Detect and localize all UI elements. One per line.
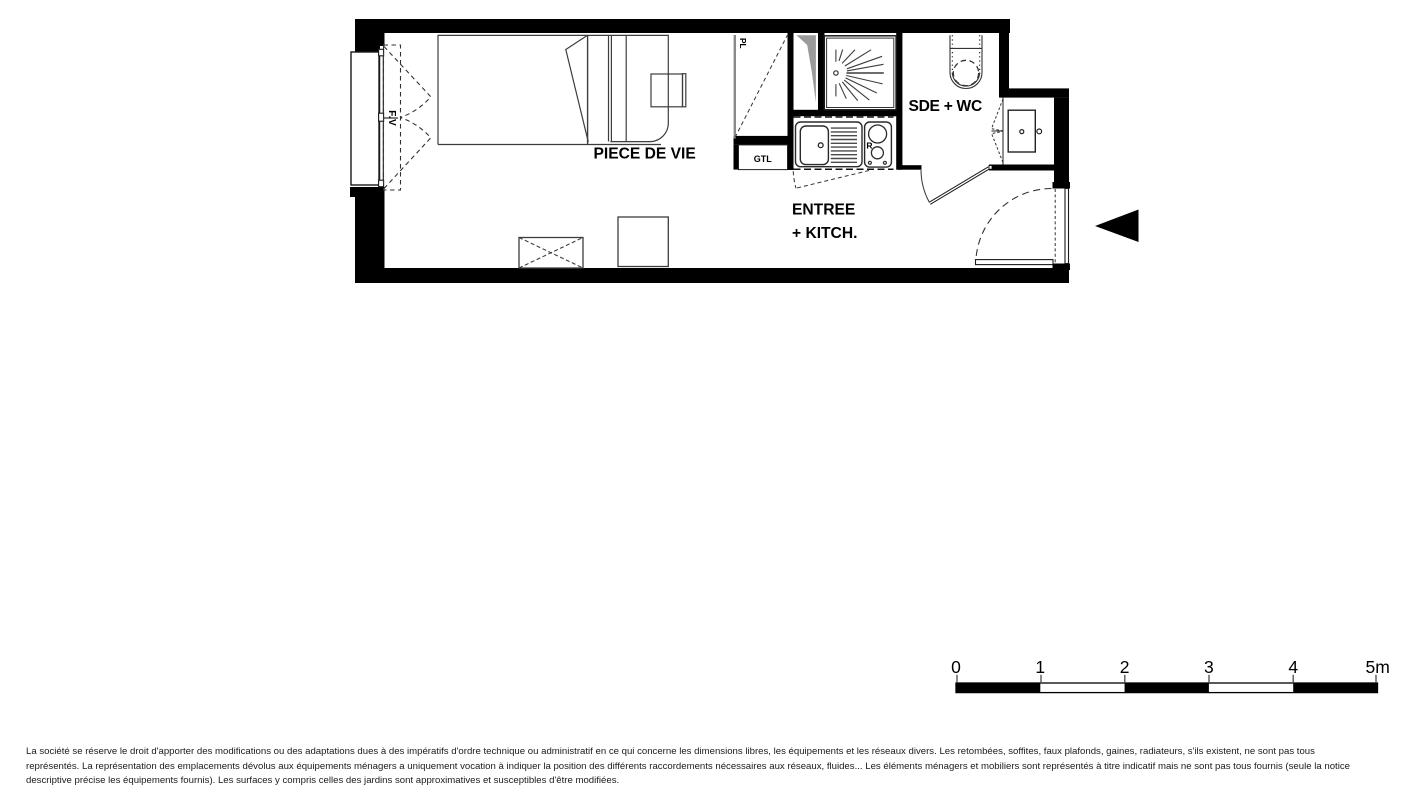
svg-text:SDE + WC: SDE + WC <box>909 98 982 115</box>
svg-text:1: 1 <box>1035 657 1045 677</box>
svg-text:PIECE DE VIE: PIECE DE VIE <box>594 146 696 163</box>
svg-text:ENTREE: ENTREE <box>792 202 855 219</box>
svg-text:0: 0 <box>951 657 961 677</box>
svg-text:+ KITCH.: + KITCH. <box>792 225 857 242</box>
svg-text:4: 4 <box>1288 657 1298 677</box>
svg-text:R: R <box>866 141 872 151</box>
svg-text:GTL: GTL <box>754 154 772 164</box>
svg-text:3: 3 <box>1204 657 1214 677</box>
svg-text:2: 2 <box>1120 657 1130 677</box>
svg-text:F.V: F.V <box>386 110 397 126</box>
svg-text:PL: PL <box>738 38 747 48</box>
svg-text:5m: 5m <box>1366 657 1390 677</box>
